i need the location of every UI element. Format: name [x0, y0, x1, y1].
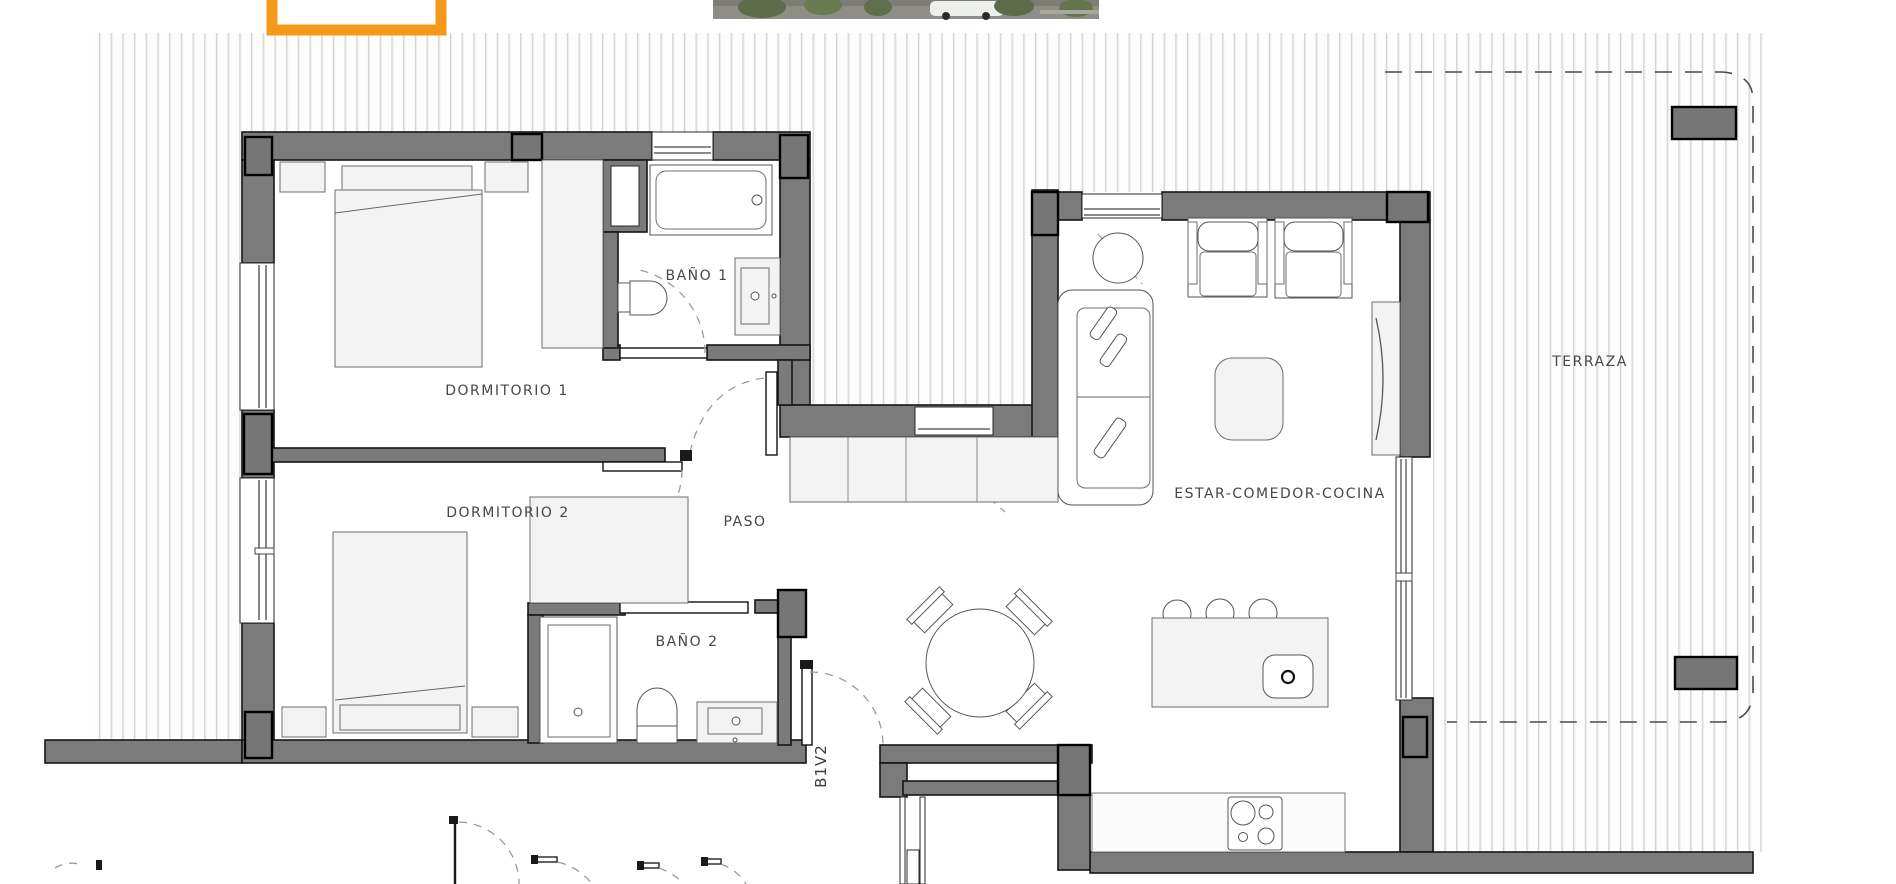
- entry-door: [800, 660, 883, 745]
- room-label-terraza: TERRAZA: [1551, 354, 1628, 370]
- neighbor-fragments: [55, 797, 925, 884]
- sofa: [1058, 290, 1153, 505]
- glass-door-terraza: [1396, 457, 1412, 700]
- armchair: [1275, 218, 1352, 298]
- door-dormitorio-1: [680, 372, 777, 461]
- hall-cabinets: [790, 437, 1058, 502]
- furniture-dormitorio-2: [282, 497, 688, 737]
- nightstand: [472, 707, 518, 737]
- room-label-estar: ESTAR-COMEDOR-COCINA: [1174, 486, 1385, 502]
- bed-headboard: [342, 166, 472, 190]
- unit-code-label: B1V2: [812, 744, 830, 788]
- dining-table: [905, 587, 1052, 734]
- armchair: [1188, 218, 1267, 297]
- door-symbol: [637, 861, 684, 884]
- bed-dormitorio-1: [335, 190, 482, 367]
- window-dormitorio-1: [240, 263, 274, 410]
- selected-thumbnail-frame[interactable]: [272, 0, 441, 30]
- side-table: [1093, 233, 1143, 283]
- floorplan-drawing: DORMITORIO 1 BAÑO 1 DORMITORIO 2 PASO BA…: [0, 0, 1896, 884]
- nightstand: [485, 162, 528, 192]
- toilet-tank: [618, 283, 630, 312]
- window-dormitorio-2: [240, 478, 274, 623]
- bed-dormitorio-2: [333, 532, 467, 733]
- photo-strip[interactable]: [713, 0, 1099, 20]
- shower-bano-2: [540, 617, 617, 743]
- floorplan-page: DORMITORIO 1 BAÑO 1 DORMITORIO 2 PASO BA…: [0, 0, 1896, 884]
- niche-shaft: [611, 166, 639, 226]
- room-label-paso: PASO: [723, 514, 766, 530]
- kitchen-island: [1152, 599, 1328, 707]
- terraza-pillar-top: [1672, 107, 1736, 139]
- bed-headboard: [340, 705, 460, 730]
- coffee-table: [1215, 358, 1283, 440]
- tv-unit: [1372, 302, 1400, 455]
- kitchen-counter: [1092, 793, 1345, 852]
- door-symbol: [449, 816, 519, 884]
- door-symbol: [531, 855, 592, 884]
- neighbor-window: [900, 797, 925, 884]
- toilet-bano-1: [630, 281, 667, 315]
- furniture-dormitorio-1: [280, 160, 603, 367]
- room-label-bano-1: BAÑO 1: [665, 267, 728, 284]
- wardrobe-dormitorio-1: [542, 160, 603, 348]
- door-symbol: [701, 857, 746, 884]
- nightstand: [282, 707, 326, 737]
- room-label-bano-2: BAÑO 2: [655, 633, 718, 650]
- terraza-pillar-bottom: [1675, 657, 1737, 689]
- toilet-bano-2: [637, 688, 677, 743]
- room-label-dormitorio-2: DORMITORIO 2: [446, 505, 570, 521]
- pocket-door-bano-2: [620, 602, 748, 613]
- room-label-dormitorio-1: DORMITORIO 1: [445, 383, 569, 399]
- nightstand: [280, 162, 325, 192]
